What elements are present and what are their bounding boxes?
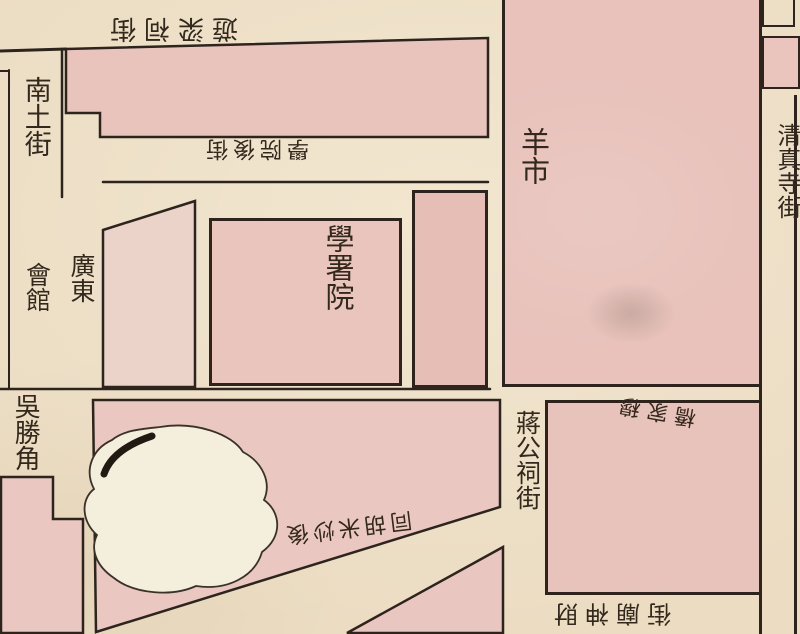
mosque-street-west-line — [759, 0, 762, 634]
paper-stain — [586, 282, 676, 344]
block-top-right-small-a — [762, 0, 795, 27]
label-qingzhensi-street: 清真寺街 — [763, 123, 800, 219]
block-narrow-east — [412, 190, 488, 388]
label-wusheng-corner: 吳勝角 — [7, 393, 42, 471]
block-west-quadrilateral — [103, 201, 195, 387]
label-guild-hall-left-column: 會館 — [20, 262, 53, 312]
block-north-band — [66, 38, 488, 137]
block-top-right-small-b — [762, 36, 800, 89]
block-bottom-sliver — [347, 547, 503, 633]
label-nantu-street: 南土街 — [16, 76, 54, 157]
label-caishen-temple-street: 財神廟街 — [547, 597, 717, 629]
label-academy-back-street: 學院後街 — [197, 133, 309, 163]
label-sheep-market: 羊市 — [511, 127, 555, 185]
label-academy-office: 學署院 — [317, 224, 359, 311]
label-youliangci-street: 遊梁祠街 — [78, 10, 238, 45]
top-street-south-line-west — [0, 49, 66, 51]
block-bottom-right — [545, 400, 759, 595]
label-guild-hall-right-column: 廣東 — [65, 253, 98, 312]
label-guild-hall: 會館 廣東 — [20, 253, 97, 312]
block-academy-office-building — [209, 218, 402, 386]
historical-city-map: 遊梁祠街 南土街 學院後街 羊市 清真寺街 學署院 會館 廣東 吳勝角 穆家橋 … — [0, 0, 800, 634]
label-jiang-shrine-street: 蔣公祠街 — [508, 410, 546, 510]
block-bottom-left-steps — [1, 477, 83, 633]
